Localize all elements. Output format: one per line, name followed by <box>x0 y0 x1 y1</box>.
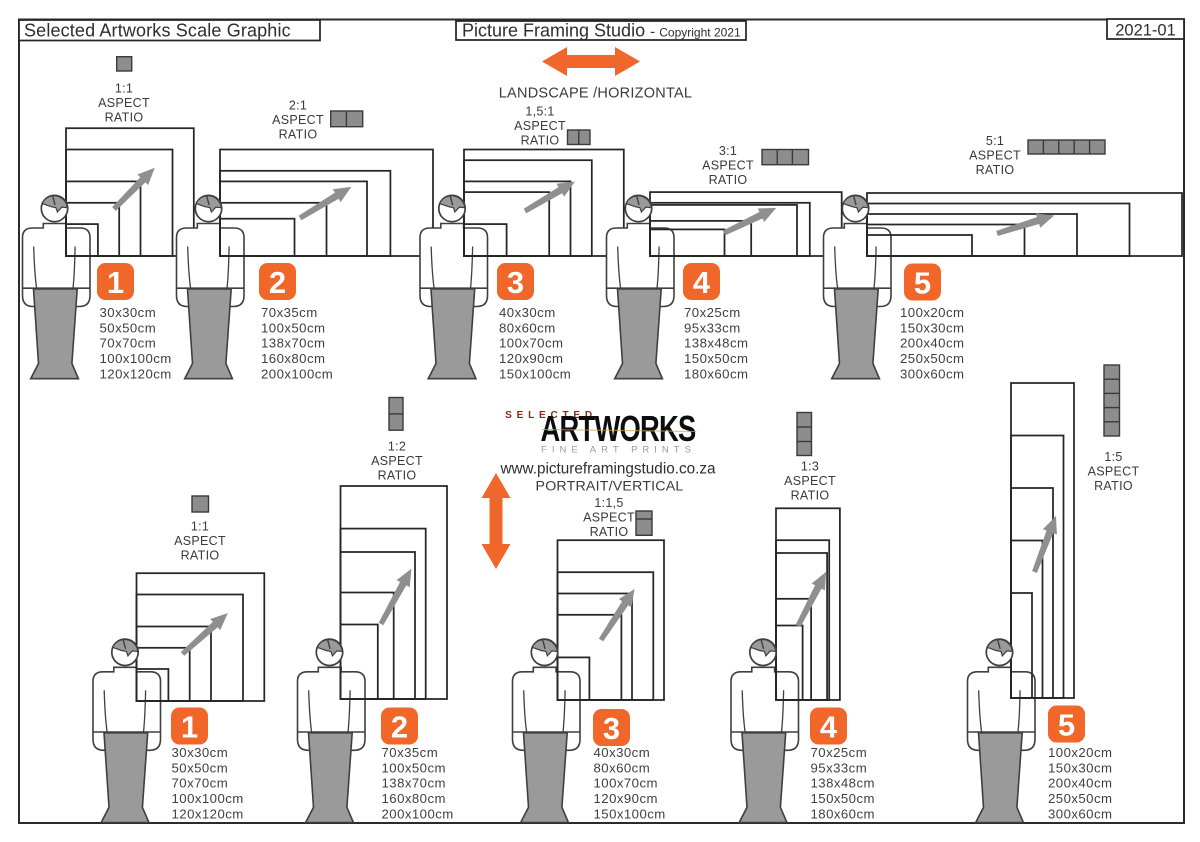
svg-text:4: 4 <box>820 710 838 745</box>
svg-text:70x25cm 95x33cm 138x48cm 150x5: 70x25cm 95x33cm 138x48cm 150x50cm 180x60… <box>684 305 753 381</box>
svg-text:70x25cm 95x33cm 138x48cm 150x5: 70x25cm 95x33cm 138x48cm 150x50cm 180x60… <box>811 745 880 821</box>
svg-text:www.pictureframingstudio.co.za: www.pictureframingstudio.co.za <box>499 461 716 478</box>
svg-text:1: 1 <box>107 265 124 300</box>
svg-text:5: 5 <box>1058 708 1075 743</box>
svg-text:PORTRAIT/VERTICAL: PORTRAIT/VERTICAL <box>536 479 684 495</box>
svg-text:100x20cm 150x30cm 200x40cm 250: 100x20cm 150x30cm 200x40cm 250x50cm 300x… <box>900 305 969 381</box>
svg-text:2: 2 <box>269 265 286 300</box>
svg-text:3: 3 <box>507 265 524 300</box>
svg-text:Selected Artworks Scale Graphi: Selected Artworks Scale Graphic <box>24 21 291 41</box>
svg-text:ARTWORKS: ARTWORKS <box>540 408 695 449</box>
svg-text:1: 1 <box>181 710 198 745</box>
svg-text:FINE ART PRINTS: FINE ART PRINTS <box>541 445 696 456</box>
svg-text:2021-01: 2021-01 <box>1115 22 1176 40</box>
svg-text:LANDSCAPE /HORIZONTAL: LANDSCAPE /HORIZONTAL <box>499 86 693 102</box>
svg-text:4: 4 <box>693 265 711 300</box>
svg-text:2: 2 <box>391 710 408 745</box>
svg-text:100x20cm 150x30cm 200x40cm 250: 100x20cm 150x30cm 200x40cm 250x50cm 300x… <box>1048 745 1117 821</box>
svg-text:3: 3 <box>603 711 620 746</box>
svg-text:5: 5 <box>914 266 931 301</box>
